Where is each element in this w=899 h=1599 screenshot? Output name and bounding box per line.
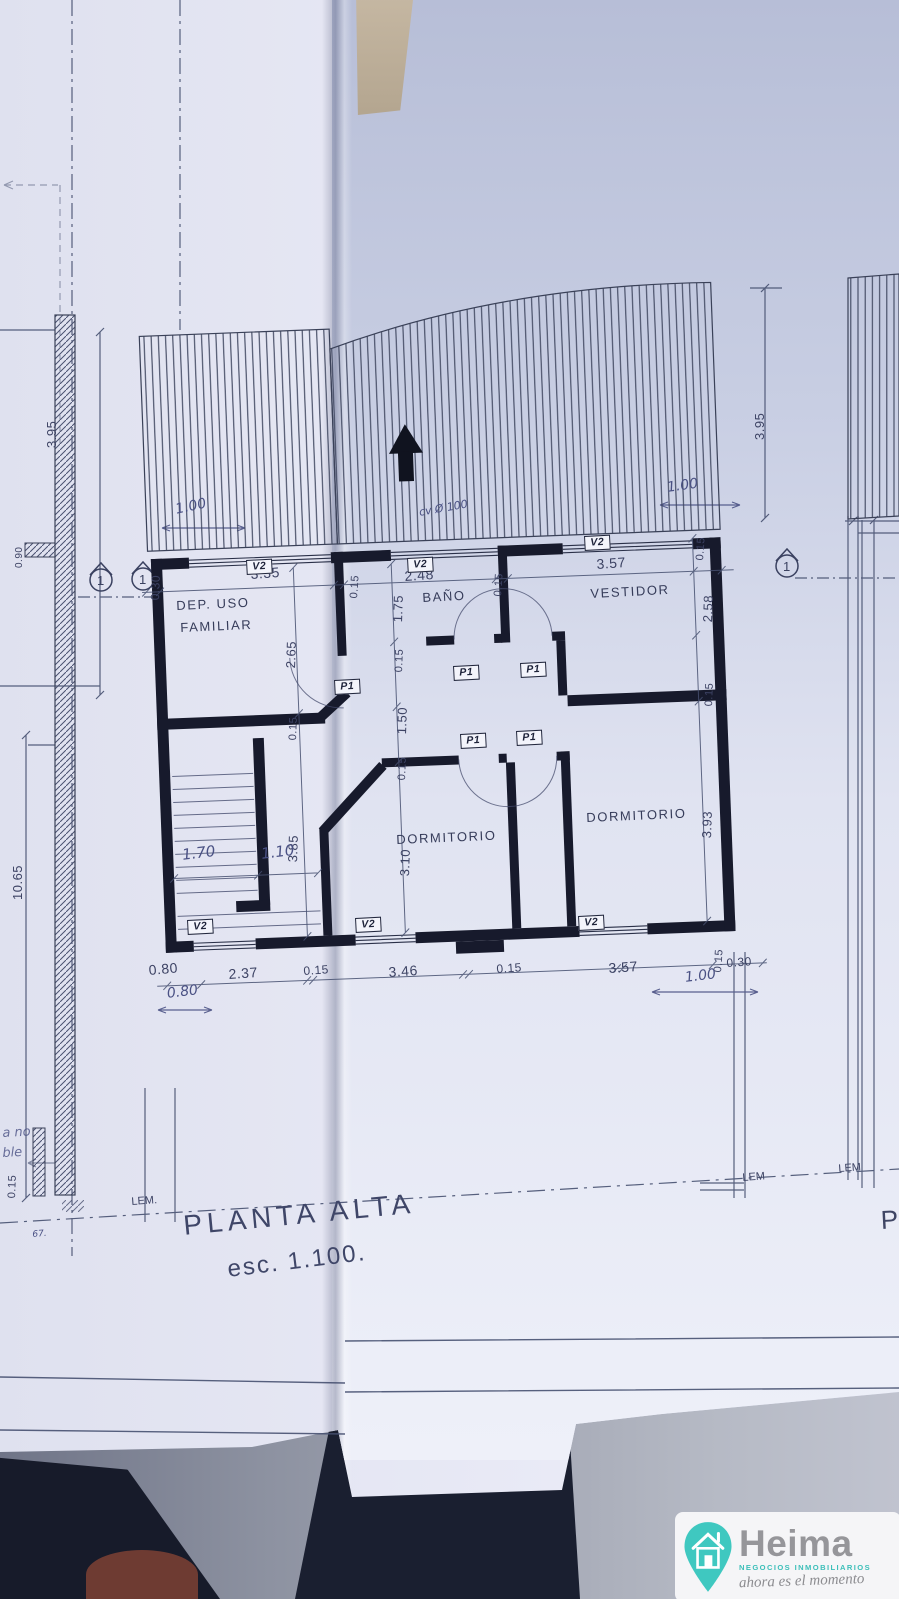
lem-label: LEM xyxy=(838,1161,861,1175)
section-marker-number: 1 xyxy=(783,559,790,574)
partial-letter: P xyxy=(880,1204,899,1236)
heima-pin-icon xyxy=(681,1519,735,1595)
dim-label: 1.75 xyxy=(390,595,406,623)
dim-label: 0.15 xyxy=(287,717,300,741)
dim-label: 3.57 xyxy=(596,554,626,572)
site-lines xyxy=(0,0,899,1434)
dim-label: 10.65 xyxy=(10,865,25,900)
photo-of-floorplan: 1 1 1 xyxy=(0,0,899,1599)
dim-label: 0.15 xyxy=(703,683,716,707)
dim-label: 0.15 xyxy=(396,757,409,781)
dim-label: 3.95 xyxy=(752,413,767,440)
section-marker-number: 1 xyxy=(139,572,146,587)
section-marker-number: 1 xyxy=(97,573,104,588)
section-markers: 1 1 1 xyxy=(90,549,798,591)
window-tag: V2 xyxy=(578,915,605,931)
window-tag: V2 xyxy=(355,917,382,933)
door-tag: P1 xyxy=(516,730,543,746)
diagonal-walls xyxy=(317,691,385,831)
heima-logo-card: Heima NEGOCIOS INMOBILIARIOS ahora es el… xyxy=(675,1512,899,1599)
window-tag: V2 xyxy=(187,919,214,935)
dim-label: 0.90 xyxy=(14,547,25,568)
dim-label: 3.93 xyxy=(699,811,715,839)
dim-label: 0.15 xyxy=(496,960,522,976)
dim-label: 3.10 xyxy=(397,849,413,877)
door-tag: P1 xyxy=(453,665,480,681)
room-label-bano: BAÑO xyxy=(422,588,466,605)
dim-label: 2.65 xyxy=(283,641,299,669)
bleed-partial-2: ble xyxy=(2,1145,23,1161)
dim-label: 3.57 xyxy=(608,958,638,976)
neighbour-wall-section xyxy=(25,315,84,1212)
dim-label: 3.95 xyxy=(44,421,59,448)
dim-label: 0.15 xyxy=(393,649,406,673)
plan-group xyxy=(131,281,767,990)
lem-label: LEM. xyxy=(131,1194,157,1208)
dim-label: 0.30 xyxy=(726,954,752,970)
dim-label: 0.15 xyxy=(303,962,329,978)
room-label-familiar: FAMILIAR xyxy=(180,617,253,635)
handwritten-note: 67. xyxy=(32,1229,47,1240)
roof-hatch-right-sliver xyxy=(848,274,899,519)
dim-label: 2.37 xyxy=(228,964,258,982)
door-tag: P1 xyxy=(520,662,547,678)
window-tag: V2 xyxy=(584,535,611,551)
room-label-dep-uso: DEP. USO xyxy=(176,595,250,613)
dim-label: 0.30 xyxy=(148,575,163,601)
dim-label: 1.50 xyxy=(394,707,410,735)
door-tag: P1 xyxy=(460,733,487,749)
door-arcs xyxy=(287,587,558,815)
dim-label: 0.15 xyxy=(492,573,506,597)
dim-label: 0.15 xyxy=(694,537,708,561)
logo-brand: Heima xyxy=(739,1525,871,1562)
lem-label: LEM xyxy=(742,1170,765,1184)
floorplan-drawing: 1 1 1 xyxy=(0,0,899,1599)
bleed-partial-1: a no xyxy=(2,1125,31,1141)
dim-label: 3.46 xyxy=(388,962,418,980)
logo-tagline: ahora es el momento xyxy=(739,1571,872,1591)
dim-label: 0.15 xyxy=(348,575,362,599)
window-tag: V2 xyxy=(246,559,273,575)
dim-label: 0.15 xyxy=(6,1175,19,1199)
window-tag: V2 xyxy=(407,557,434,573)
dim-label: 0.80 xyxy=(148,959,179,977)
door-tag: P1 xyxy=(334,679,361,695)
dim-label: 2.58 xyxy=(700,595,716,623)
